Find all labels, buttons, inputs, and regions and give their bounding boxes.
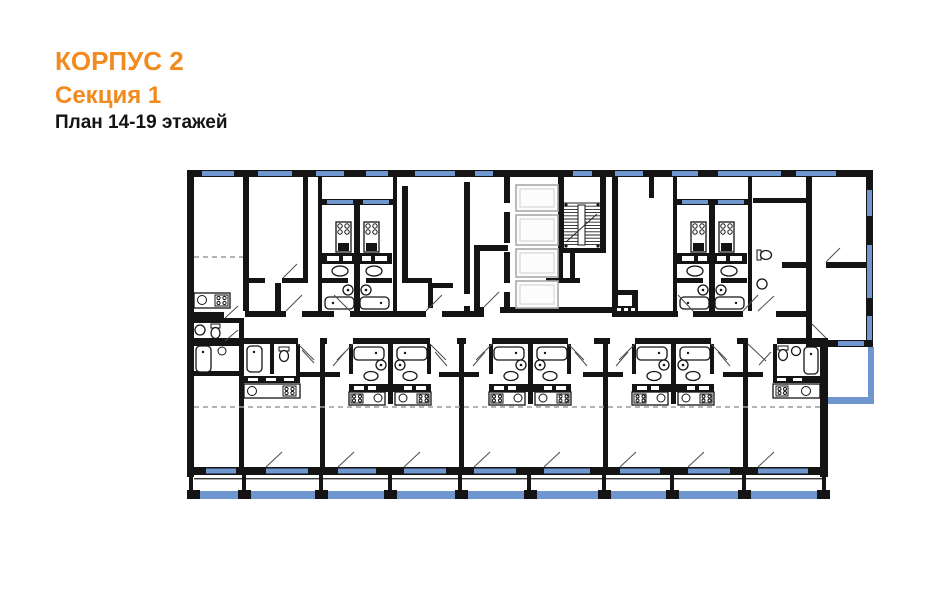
bathtub-icon <box>537 347 567 360</box>
bathtub-icon <box>494 347 524 360</box>
sink-icon <box>647 372 661 381</box>
bathtub-icon <box>354 347 384 360</box>
bathtub-icon <box>247 346 262 372</box>
toilet-icon <box>757 250 772 260</box>
kitchen-counter-icon <box>322 253 392 264</box>
kitchen-counter-icon <box>677 253 747 264</box>
bathtub-icon <box>397 347 427 360</box>
bathtub-icon <box>680 297 709 309</box>
floor-plan-page: { "header": { "building": "КОРПУС 2", "s… <box>0 0 941 600</box>
washbasin-icon <box>218 347 226 355</box>
washbasin-icon <box>792 347 801 356</box>
washbasin-icon <box>757 279 767 289</box>
kitchen-counter-icon <box>244 376 300 398</box>
bathtub-icon <box>680 347 710 360</box>
toilet-icon <box>778 346 788 361</box>
bathtub-icon <box>637 347 667 360</box>
sink-icon <box>721 266 737 276</box>
elevator-shafts <box>516 185 558 308</box>
toilet-icon <box>279 347 289 362</box>
sink-icon <box>332 266 348 276</box>
bathtub-icon <box>715 297 744 309</box>
sink-icon <box>504 372 518 381</box>
kitchen-counter-icon <box>194 293 230 318</box>
sink-icon <box>364 372 378 381</box>
floor-plan <box>0 0 941 600</box>
sink-icon <box>366 266 382 276</box>
sink-icon <box>543 372 557 381</box>
sink-icon <box>687 266 703 276</box>
toilet-icon <box>211 324 220 339</box>
washbasin-icon <box>195 325 205 335</box>
sink-icon <box>403 372 417 381</box>
sink-icon <box>686 372 700 381</box>
bathtub-icon <box>196 346 211 372</box>
kitchen-counter-icon <box>773 376 820 398</box>
bathtub-icon <box>804 347 818 374</box>
bathtub-icon <box>360 297 389 309</box>
bathtub-icon <box>325 297 354 309</box>
